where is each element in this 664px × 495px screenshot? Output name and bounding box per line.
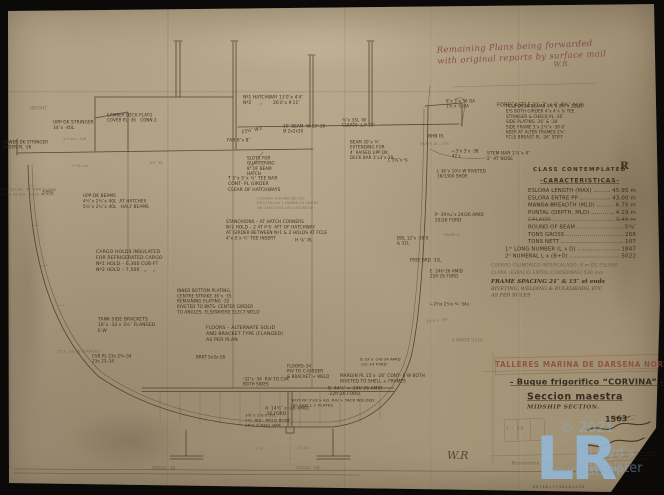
characteristics-table: CLASS CONTEMPLATED R -CARACTERISTICAS- E… [498, 161, 664, 311]
characteristics-row: ESLORA ENTRE PP43.00 m [528, 194, 636, 201]
annotation: L 3⅝″x ⅜ [388, 150, 428, 169]
class-symbol: R [620, 159, 629, 172]
annotation: 6″x 3″x 36 OA 1⅝ x ⅞ BA [446, 99, 504, 120]
characteristic-label: MANGA BREADTH (MLD) [528, 202, 595, 208]
characteristics-notes: CUERPO CILINDRICO INTERCALADO: 8 m DE ES… [491, 262, 664, 299]
drawing-subtitle: Seccion maestra [527, 391, 623, 402]
annotation: Nº1 HATCHWAY 13′0″x 4′4″ Nº2 „ 26′0″x 9′… [243, 95, 363, 117]
drawing-title: - Buque frigorifico “CORVINA” - [510, 377, 664, 387]
characteristic-value: 6.75 m [616, 202, 636, 209]
annotation: 5′0″ 4B [150, 152, 176, 171]
annotation: 3′10″ [255, 438, 273, 457]
characteristic-value: 107 [625, 238, 636, 245]
characteristics-row: 1ˢᵗ LONG NUMBER (L x D)1847 [505, 245, 636, 252]
class-contemplated-label: CLASS CONTEMPLATED [533, 166, 627, 173]
annotation: FAR 6″x 8″ [227, 130, 273, 149]
characteristics-row: TONS GROSS266 [528, 231, 636, 238]
leader-dots [580, 198, 610, 199]
characteristics-row: TONS NETT107 [528, 238, 636, 245]
characteristics-row: 2ᵈ NUMERAL L x (B+D)5022 [505, 253, 636, 260]
leader-dots [566, 235, 623, 236]
characteristic-value: 5022 [621, 253, 636, 260]
characteristics-row: ESLORA LENGTH (MAX)45.95 m [528, 187, 636, 194]
annotation: CAMBER DECK PLATG COVER PL ·36 CONN 2 [107, 113, 206, 134]
characteristics-note: FRAME SPACING 21″ & 15″ at ends [491, 277, 664, 286]
yard-stamp: TALLERES MARINA DE DARSENA NORTE [495, 360, 664, 369]
annotation: 4′11⅛″ [298, 437, 323, 456]
characteristic-label: PUNTAL (DEPTH, MLD) [528, 209, 589, 215]
leader-dots [570, 257, 620, 258]
annotation: 4·5 mm 438 [63, 128, 109, 147]
caracteristicas-title: -CARACTERISTICAS- [540, 177, 620, 184]
characteristic-value: 45.95 m [612, 187, 636, 194]
annotation: H ⅞″ PL [295, 230, 330, 249]
annotation: ·32″x ·34 RIV TO CVK BOTH SIDES [243, 377, 335, 398]
annotation: ⅝″x 33L ·W CLEATS· L.P 33″ [342, 118, 408, 139]
characteristic-label: ESLORA LENGTH (MAX) [528, 188, 592, 194]
characteristics-row: PUNTAL (DEPTH, MLD)4.19 m [528, 209, 636, 216]
characteristic-label: ROUND OF BEAM [528, 224, 575, 230]
characteristic-label: 1ˢᵗ LONG NUMBER (L x D) [505, 246, 576, 252]
characteristic-value: 1847 [621, 245, 636, 252]
leader-dots [594, 191, 610, 192]
characteristics-note: CLARA (ESPACIO ENTRE CUADERNAS) 530 mm [491, 270, 664, 278]
annotation: 4 BRKTS ⅞x16 [452, 330, 513, 349]
leader-dots [561, 242, 623, 243]
characteristics-note: CUERPO CILINDRICO INTERCALADO: 8 m DE ES… [491, 262, 664, 270]
drawing-number: 1563 [605, 414, 628, 424]
annotation: BRKT 5x3x·26 [196, 347, 254, 366]
annotation: ⅝″x 33·40L Nº HATCH SIDE 5¾″x 32·40L HAL… [1, 187, 112, 208]
characteristic-label: ESLORA ENTRE PP [528, 195, 578, 201]
characteristics-row: ROUND OF BEAM5⅝″ [528, 223, 636, 230]
annotation: 16⅞ x ·34 [425, 307, 469, 330]
characteristics-note: AS PER RULES [491, 292, 664, 299]
leader-dots [577, 227, 623, 228]
characteristics-rows: ESLORA LENGTH (MAX)45.95 mESLORA ENTRE P… [528, 187, 636, 260]
characteristic-label: 2ᵈ NUMERAL L x (B+D) [505, 253, 568, 259]
leader-dots [578, 249, 620, 250]
characteristic-label: TONS NETT [528, 239, 559, 245]
surveyor-initials: W.R. [553, 59, 570, 71]
characteristic-value: 266 [625, 231, 636, 238]
characteristics-row: MANGA BREADTH (MLD)6.75 m [528, 202, 636, 209]
characteristic-value: 43.00 m [612, 194, 636, 201]
characteristic-value: 5⅝″ [625, 223, 636, 230]
leader-dots [553, 220, 614, 221]
leader-dots [597, 206, 614, 207]
drawing-subtitle-english: MIDSHIP SECTION. [527, 403, 600, 410]
annotation: E ·24f/·26 AMID 22f/·26 FORD [430, 269, 496, 290]
leader-dots [591, 213, 613, 214]
characteristic-label: TONS GROSS [528, 231, 564, 237]
characteristic-value: 4.19 m [616, 209, 636, 216]
annotation: GRADA GB [296, 458, 343, 477]
drawing-scale: 1 : 20 [506, 426, 524, 431]
characteristics-row: CALADO3.45 m [528, 216, 636, 223]
annotation: GRADA AB [152, 458, 199, 477]
scanned-blueprint: Nº1 HATCHWAY 13′0″x 4′4″ Nº2 „ 26′0″x 9′… [0, 0, 664, 495]
annotation: HEIGHT [30, 98, 64, 117]
drawing-date: Noviembre 19 [512, 461, 548, 466]
characteristic-label: CALADO [528, 217, 551, 223]
annotation: 2·94 mm [72, 155, 104, 174]
title-block: TALLERES MARINA DE DARSENA NORTE - Buque… [483, 350, 663, 490]
annotation: FREE BRD ·32L [410, 250, 473, 269]
annotation: CVK PL 23x 2¾–34 23x 23–34 [92, 354, 171, 375]
characteristic-value: 3.45 m [616, 216, 636, 223]
